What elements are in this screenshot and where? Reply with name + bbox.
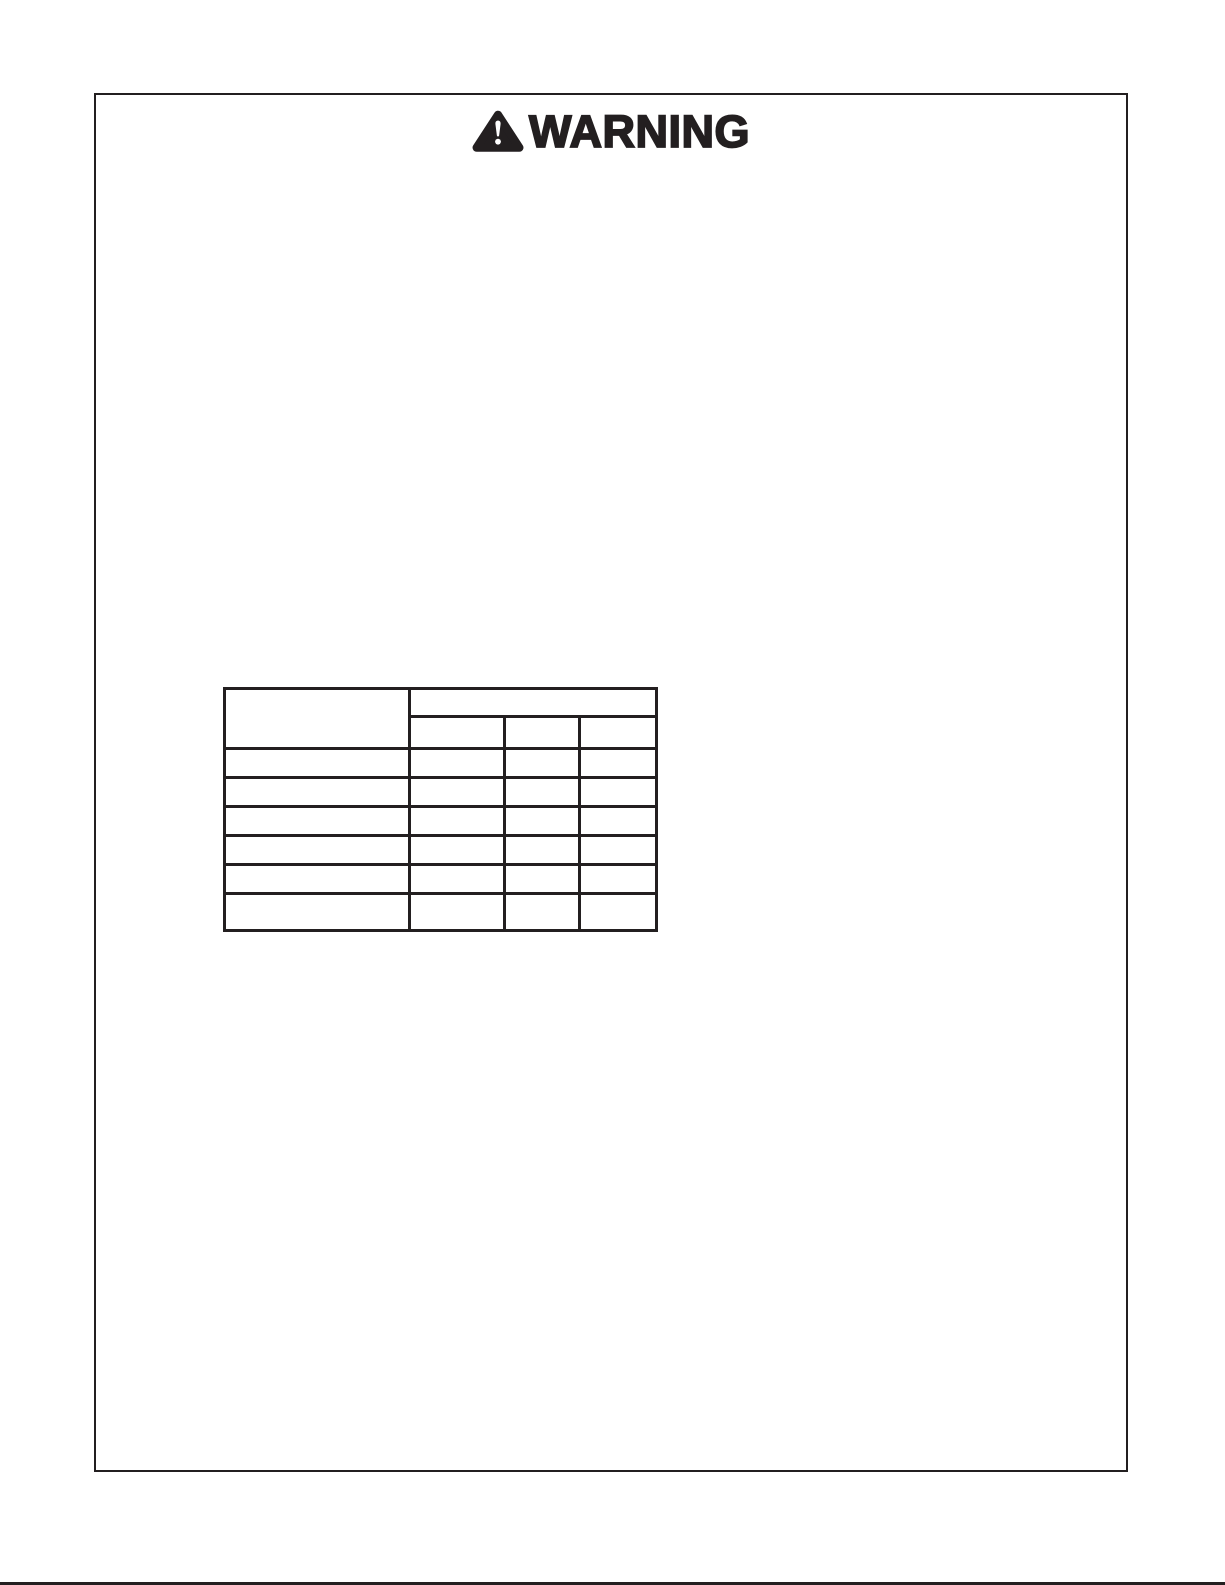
table-row-label-cell	[225, 894, 410, 931]
table-value-cell	[505, 894, 580, 931]
document-page: WARNING	[0, 0, 1225, 1585]
table-value-cell	[410, 894, 505, 931]
table-header-row-1	[225, 689, 657, 717]
table-corner-header-cell	[225, 689, 410, 749]
table-value-cell	[505, 865, 580, 894]
table-value-cell	[505, 778, 580, 807]
table-subheader-cell	[505, 717, 580, 749]
table-row	[225, 778, 657, 807]
table-value-cell	[580, 865, 657, 894]
table-value-cell	[505, 836, 580, 865]
table-value-cell	[580, 807, 657, 836]
table-row	[225, 836, 657, 865]
table-value-cell	[580, 836, 657, 865]
warning-label: WARNING	[529, 109, 750, 154]
page-border: WARNING	[94, 93, 1128, 1472]
table-value-cell	[410, 778, 505, 807]
warning-triangle-icon	[472, 108, 524, 154]
table-subheader-cell	[580, 717, 657, 749]
table-row	[225, 894, 657, 931]
table-value-cell	[410, 836, 505, 865]
table-value-cell	[580, 749, 657, 778]
table-subheader-cell	[410, 717, 505, 749]
table-span-header-cell	[410, 689, 657, 717]
table-value-cell	[410, 749, 505, 778]
table-value-cell	[580, 778, 657, 807]
table-value-cell	[410, 807, 505, 836]
table-row	[225, 807, 657, 836]
warning-header: WARNING	[96, 107, 1126, 155]
table-row-label-cell	[225, 865, 410, 894]
table-row	[225, 749, 657, 778]
table-value-cell	[580, 894, 657, 931]
spec-table	[223, 687, 658, 932]
table-value-cell	[410, 865, 505, 894]
table-row	[225, 865, 657, 894]
table-row-label-cell	[225, 807, 410, 836]
table-value-cell	[505, 807, 580, 836]
table-value-cell	[505, 749, 580, 778]
table-row-label-cell	[225, 749, 410, 778]
table-row-label-cell	[225, 836, 410, 865]
table-row-label-cell	[225, 778, 410, 807]
